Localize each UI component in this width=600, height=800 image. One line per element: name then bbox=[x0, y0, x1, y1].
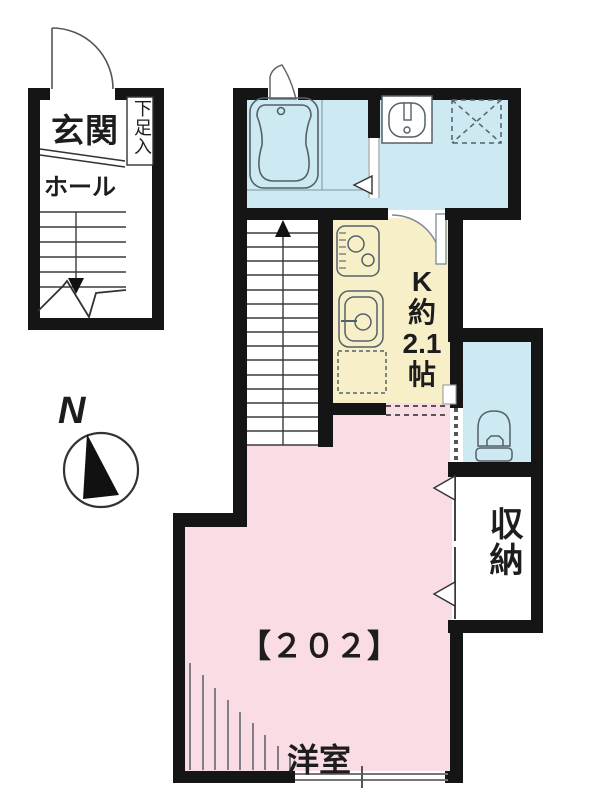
kitchen-size-unit: 帖 bbox=[408, 359, 436, 390]
hall-label: ホール bbox=[42, 167, 118, 202]
north-label: N bbox=[58, 390, 85, 433]
entrance-door-arc bbox=[52, 28, 113, 89]
toilet-floor bbox=[463, 342, 531, 462]
kitchen-size-value: 2.1 bbox=[403, 328, 442, 359]
washbasin bbox=[382, 96, 432, 143]
bath-divider-wall bbox=[368, 88, 380, 140]
shoe-storage-label: 下足入 bbox=[129, 99, 155, 169]
kitchen-letter: K bbox=[412, 266, 432, 297]
storage-label: 収納 bbox=[479, 506, 528, 626]
entrance-label: 玄関 bbox=[48, 104, 122, 152]
room-type: 洋室 bbox=[183, 741, 455, 779]
kitchen-bottom-wall bbox=[318, 403, 386, 415]
kitchen-approx: 約 bbox=[408, 297, 436, 328]
bathroom-vent-door bbox=[268, 65, 298, 100]
compass bbox=[64, 433, 138, 507]
staircase-up bbox=[247, 220, 318, 445]
room-number: 【２０２】 bbox=[183, 627, 455, 665]
main-room-label: 【２０２】 洋室 約７．９帖 bbox=[183, 551, 455, 800]
entrance-staircase-down bbox=[38, 212, 126, 317]
floor-plan: 玄関 下足入 ホール N K 約 2.1 帖 【２０２】 洋室 約７．９帖 収納 bbox=[0, 0, 600, 800]
kitchen-label: K 約 2.1 帖 bbox=[392, 266, 452, 390]
up-arrow bbox=[275, 220, 291, 237]
